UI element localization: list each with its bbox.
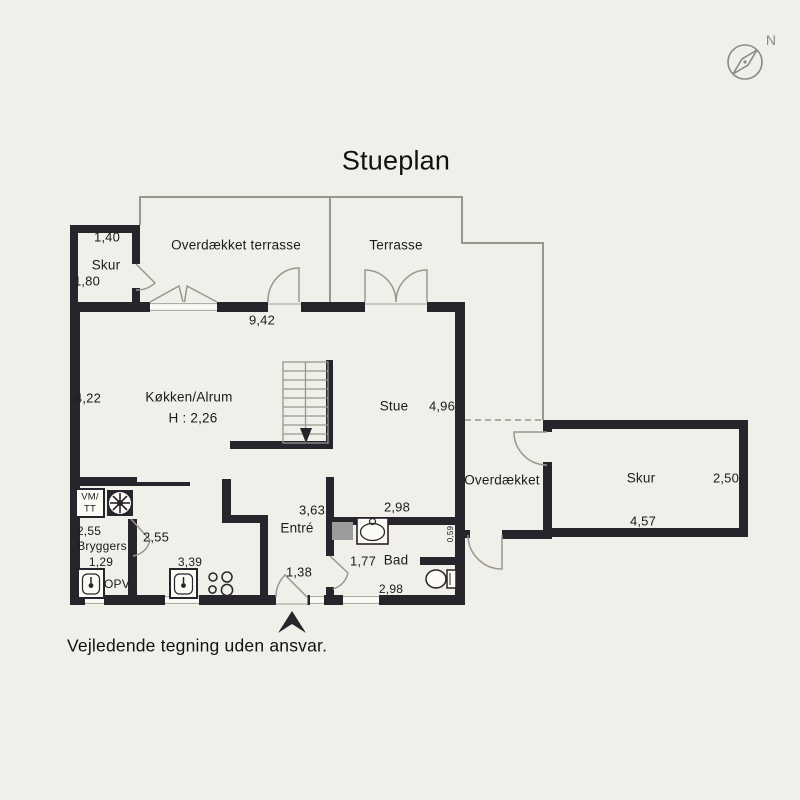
dim-bad-depth: 1,77 — [350, 555, 376, 568]
floor-plan-page: Stueplan N 1,40 Skur 1,80 Overdækket ter… — [0, 0, 800, 800]
dim-bryggers-right: 2,55 — [143, 531, 169, 544]
room-label-terrasse: Terrasse — [369, 238, 422, 252]
entrance-arrow — [278, 611, 306, 633]
ventilation-fan-icon — [107, 490, 133, 516]
room-label-bryggers: Bryggers — [77, 540, 127, 552]
stairs-down-arrow — [300, 428, 312, 443]
room-label-stue: Stue — [380, 399, 409, 413]
dim-skur-right-width: 4,57 — [630, 515, 656, 528]
room-label-bad: Bad — [384, 553, 409, 567]
dim-stue-width: 4,96 — [429, 400, 455, 413]
page-title: Stueplan — [342, 148, 450, 175]
dishwasher-label: OPV — [104, 578, 130, 590]
dim-bryggers-small: 1,29 — [89, 556, 113, 568]
room-label-skur-right: Skur — [627, 471, 656, 485]
stove-icon — [209, 572, 233, 596]
toilet-icon — [426, 570, 456, 588]
dim-skur-right-depth: 2,50 — [713, 472, 739, 485]
shower-cabinet — [332, 522, 353, 540]
bathroom-sink-icon — [357, 518, 388, 544]
door-swings — [131, 264, 547, 597]
bryggers-sink-icon — [78, 569, 104, 598]
dim-bryggers-width: 2,55 — [77, 525, 101, 537]
room-label-overdaekket: Overdækket — [464, 473, 540, 487]
dim-bad-width-top: 2,98 — [384, 501, 410, 514]
dim-koekken-width: 9,42 — [249, 314, 275, 327]
room-label-skur-left: Skur — [92, 258, 121, 272]
room-label-overdaekket-terrasse: Overdækket terrasse — [171, 238, 301, 252]
room-label-entre: Entré — [280, 521, 313, 535]
washer-label: VM/ — [81, 492, 99, 502]
dim-skur-left-width: 1,40 — [94, 231, 120, 244]
compass-north-label: N — [766, 33, 776, 47]
disclaimer-text: Vejledende tegning uden ansvar. — [67, 637, 327, 655]
dim-bad-width-bottom: 2,98 — [379, 583, 403, 595]
dim-kitchen-width: 3,39 — [178, 556, 202, 568]
compass-icon — [728, 45, 762, 79]
dryer-label: TT — [84, 504, 96, 514]
kitchen-sink-icon — [170, 569, 197, 598]
dim-skur-left-depth: 1,80 — [74, 275, 100, 288]
dim-entre-width: 1,38 — [286, 566, 312, 579]
dim-entre-depth: 3,63 — [299, 504, 325, 517]
ceiling-height-label: H : 2,26 — [169, 411, 218, 425]
room-label-koekken-alrum: Køkken/Alrum — [145, 390, 232, 404]
dim-koekken-depth: 4,22 — [75, 392, 101, 405]
dim-bad-wall: 0,59 — [447, 526, 455, 542]
